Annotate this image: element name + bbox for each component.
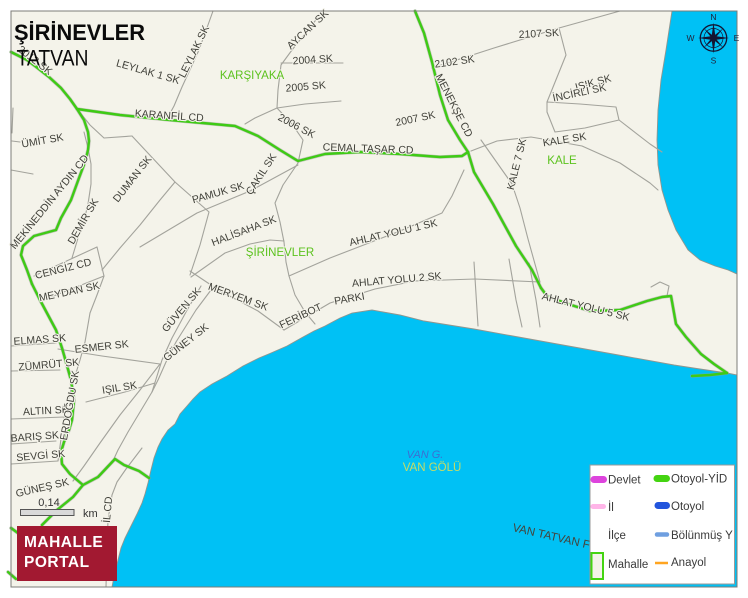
svg-text:İL CD: İL CD — [100, 496, 115, 524]
svg-text:VAN GÖLÜ: VAN GÖLÜ — [403, 462, 462, 474]
svg-text:km: km — [83, 508, 98, 520]
svg-text:PORTAL: PORTAL — [24, 554, 90, 571]
svg-text:KALE: KALE — [547, 155, 577, 167]
svg-text:Devlet: Devlet — [608, 475, 641, 487]
svg-text:N: N — [710, 12, 716, 22]
svg-text:KARŞIYAKA: KARŞIYAKA — [220, 70, 285, 82]
svg-text:E: E — [734, 33, 740, 43]
svg-text:Otoyol-YİD: Otoyol-YİD — [671, 473, 727, 486]
svg-text:VAN G.: VAN G. — [407, 449, 444, 461]
svg-text:ŞİRİNEVLER: ŞİRİNEVLER — [14, 20, 145, 45]
svg-text:2107 SK: 2107 SK — [518, 27, 559, 41]
svg-text:Mahalle: Mahalle — [608, 559, 648, 571]
svg-text:İlçe: İlçe — [608, 529, 626, 542]
svg-text:Bölünmüş Y: Bölünmüş Y — [671, 530, 733, 542]
svg-text:Otoyol: Otoyol — [671, 501, 704, 513]
svg-text:ŞİRİNEVLER: ŞİRİNEVLER — [246, 246, 314, 259]
svg-text:S: S — [711, 56, 717, 66]
svg-text:W: W — [686, 33, 694, 43]
svg-text:MAHALLE: MAHALLE — [24, 534, 103, 551]
svg-text:0,14: 0,14 — [38, 497, 59, 509]
svg-text:Anayol: Anayol — [671, 557, 706, 569]
svg-text:İl: İl — [608, 501, 614, 514]
svg-text:TATVAN: TATVAN — [17, 46, 89, 71]
